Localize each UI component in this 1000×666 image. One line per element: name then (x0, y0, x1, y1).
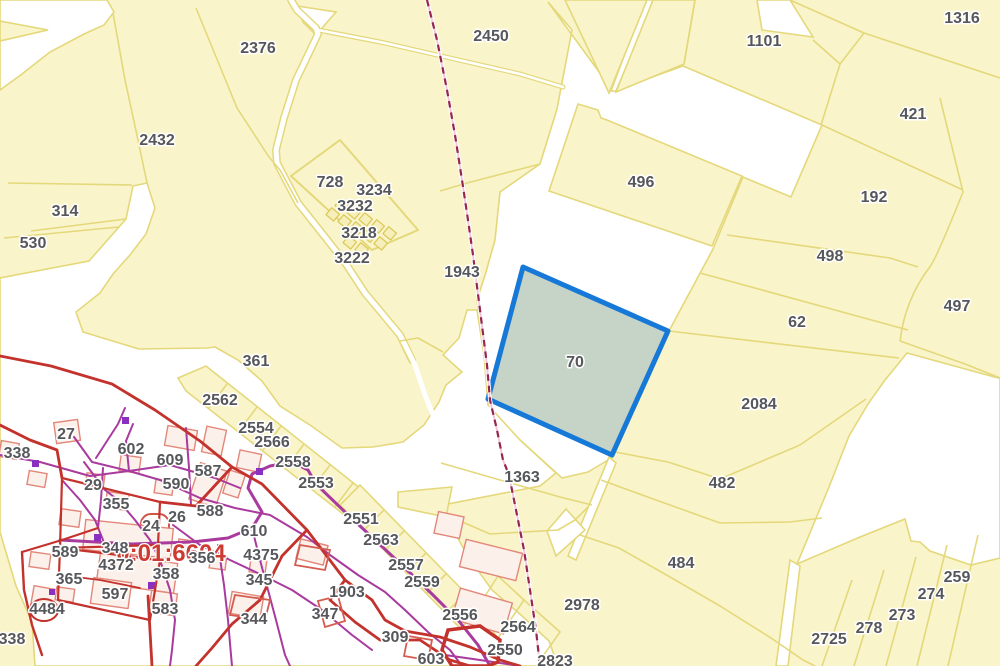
svg-text:338: 338 (4, 445, 31, 462)
svg-text:2558: 2558 (275, 454, 311, 471)
svg-text:3222: 3222 (334, 250, 370, 267)
svg-text:356: 356 (189, 550, 216, 567)
svg-text:2432: 2432 (139, 132, 175, 149)
svg-text:2450: 2450 (473, 28, 509, 45)
svg-text:1101: 1101 (747, 33, 782, 50)
svg-text:2564: 2564 (500, 619, 536, 636)
svg-text:355: 355 (103, 496, 130, 513)
svg-text:361: 361 (243, 353, 270, 370)
svg-text:365: 365 (56, 571, 83, 588)
svg-text:2084: 2084 (741, 396, 777, 413)
svg-text:1316: 1316 (944, 10, 980, 27)
svg-text:498: 498 (817, 248, 844, 265)
svg-text:421: 421 (900, 106, 927, 123)
svg-text:2566: 2566 (254, 434, 290, 451)
svg-text:4375: 4375 (243, 547, 279, 564)
svg-text:309: 309 (382, 629, 409, 646)
svg-text:259: 259 (944, 569, 971, 586)
svg-text:2553: 2553 (298, 475, 334, 492)
svg-text:496: 496 (628, 174, 655, 191)
svg-text:344: 344 (241, 611, 268, 628)
svg-text:2556: 2556 (442, 607, 478, 624)
svg-text:348: 348 (102, 540, 129, 557)
svg-text:273: 273 (889, 607, 916, 624)
svg-text:482: 482 (709, 475, 736, 492)
svg-text:2550: 2550 (487, 642, 523, 659)
svg-text:70: 70 (566, 354, 584, 371)
svg-text:2978: 2978 (564, 597, 600, 614)
svg-text:2563: 2563 (363, 532, 399, 549)
svg-text:26: 26 (168, 509, 186, 526)
svg-text:2823: 2823 (537, 653, 573, 666)
svg-text:24: 24 (142, 518, 160, 535)
svg-text:3234: 3234 (356, 182, 392, 199)
svg-text:2559: 2559 (404, 574, 440, 591)
svg-text:609: 609 (157, 452, 184, 469)
svg-text:274: 274 (918, 586, 945, 603)
svg-text:1903: 1903 (329, 584, 365, 601)
svg-text:3232: 3232 (337, 198, 373, 215)
svg-text:530: 530 (20, 235, 47, 252)
svg-text:588: 588 (197, 503, 224, 520)
svg-text:1943: 1943 (444, 264, 480, 281)
svg-text:603: 603 (418, 651, 445, 666)
svg-text:2551: 2551 (343, 511, 379, 528)
svg-text:347: 347 (312, 606, 339, 623)
svg-text:589: 589 (52, 544, 79, 561)
svg-text:4372: 4372 (98, 557, 134, 574)
svg-text:4484: 4484 (29, 601, 65, 618)
svg-text:597: 597 (102, 586, 129, 603)
svg-text:728: 728 (317, 174, 344, 191)
svg-text:602: 602 (118, 441, 145, 458)
svg-text:2725: 2725 (811, 631, 847, 648)
svg-text:192: 192 (861, 189, 888, 206)
svg-text:2376: 2376 (240, 40, 276, 57)
svg-text:62: 62 (788, 314, 806, 331)
svg-text:497: 497 (944, 298, 971, 315)
svg-text:278: 278 (856, 620, 883, 637)
svg-text:338: 338 (0, 631, 25, 648)
svg-text:583: 583 (152, 601, 179, 618)
svg-text:587: 587 (195, 463, 222, 480)
svg-text:345: 345 (246, 572, 273, 589)
svg-text:29: 29 (84, 477, 102, 494)
svg-text:2557: 2557 (388, 557, 424, 574)
svg-text:590: 590 (163, 476, 190, 493)
svg-text:610: 610 (241, 523, 268, 540)
svg-text:358: 358 (153, 566, 180, 583)
svg-text:1363: 1363 (504, 469, 540, 486)
svg-text:3218: 3218 (341, 225, 377, 242)
svg-text:2562: 2562 (202, 392, 238, 409)
svg-text:484: 484 (668, 555, 695, 572)
svg-text:27: 27 (57, 426, 75, 443)
svg-text:314: 314 (52, 203, 79, 220)
